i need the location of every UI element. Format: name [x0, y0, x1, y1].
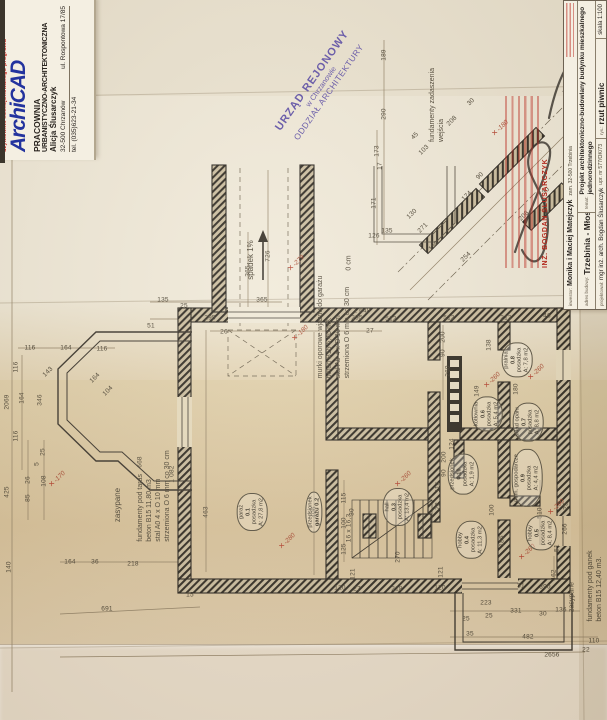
room-label-line: hobby — [528, 521, 535, 546]
room-label-line: 0.3 — [391, 493, 398, 521]
titleblock-designer-row: projektował: mgr inż. arch. Bogdan Ślusa… — [596, 1, 606, 309]
note-line: murki oporowe wjazdu do garażu — [316, 276, 325, 379]
note-line: fundamenty zadaszenia — [428, 68, 437, 142]
archicad-logo: ArchiCAD — [8, 6, 29, 152]
level-mark: ✕-180 — [290, 323, 310, 343]
plan-note: zasypane — [567, 582, 576, 612]
letterhead-line1: PRACOWNIA — [32, 6, 42, 152]
dim-label: 174 — [460, 189, 473, 202]
room-label-line: A: 11,3 m2 — [478, 526, 485, 554]
dim-label: 110 — [589, 638, 600, 645]
dim-label: 295 — [204, 315, 215, 322]
note-line: 0 cm — [344, 255, 353, 270]
titleblock-investor-row: inwestor: Monika i Maciej Matejczyk zam.… — [564, 1, 578, 309]
level-mark-icon: ✕ — [48, 480, 57, 489]
room-label-line: hall — [385, 493, 392, 521]
room-label: hobby0.4posadzkaA: 11,3 m2 — [456, 521, 487, 559]
level-mark-icon: ✕ — [527, 373, 536, 382]
investor-name: Monika i Maciej Matejczyk — [567, 200, 574, 286]
dim-label: 482 — [522, 634, 533, 641]
designer-name: mgr inż. arch. Bogdan Ślusarczyk — [598, 188, 605, 280]
dim-label: 390 — [539, 584, 550, 591]
room-label-line: A: 13,4 m2 — [405, 493, 412, 521]
level-mark: ✕-170 — [47, 469, 67, 489]
dim-label: 149 — [474, 385, 481, 396]
note-line: beton B15 11,80 m3. — [145, 450, 154, 541]
level-mark-icon: ✕ — [518, 553, 527, 562]
plan-note: 0 cm — [344, 255, 353, 270]
letterhead-line3: Alicja Ślusarczyk — [49, 6, 58, 152]
letterhead-address-row: 32-500 Chrzanów ul. Rospontowa 17/85 — [60, 6, 67, 152]
dim-label: 104 — [101, 384, 114, 397]
room-label-line: kotłownia — [474, 402, 481, 427]
letterhead-line2: URBANISTYCZNO-ARCHITEKTONICZNA — [42, 6, 49, 152]
room-label-line: posadzka — [527, 454, 534, 502]
dim-label: 346 — [37, 394, 44, 405]
dim-label: 124 — [449, 438, 456, 449]
room-label-line: 0.1 — [245, 498, 252, 526]
level-mark-icon: ✕ — [483, 381, 492, 390]
room-label-line: 0.6 — [480, 402, 487, 427]
dim-label: 116 — [13, 431, 20, 442]
dim-label: 125 — [341, 543, 348, 554]
room-label-line: przedsionek — [307, 496, 314, 527]
investor-address: zam. 32-500 Trzebinia — [568, 146, 574, 195]
dim-label: 260 — [445, 365, 452, 376]
dim-label: 116 — [13, 362, 20, 373]
note-line: strzemiona O 6 mm co 30 cm — [163, 450, 172, 541]
dim-label: 136 — [555, 607, 566, 614]
dim-label: 90 — [440, 349, 447, 357]
plan-note: fundamenty pod ganekbeton B15 12,40 m3. — [586, 550, 604, 621]
dim-label: 108 — [41, 475, 48, 486]
title-block: inwestor: Monika i Maciej Matejczyk zam.… — [563, 0, 607, 310]
subject-cell: temat: Projekt architektoniczno-budowlan… — [578, 1, 595, 212]
room-label-line: A: 5,4 m2 — [494, 402, 501, 427]
dim-label: 35 — [466, 631, 474, 638]
drawing-name: rzut piwnic — [597, 83, 606, 125]
dim-label: 30 — [466, 97, 476, 107]
room-label-line: A: 1,9 m2 — [470, 458, 477, 489]
dim-label: 26 — [25, 476, 32, 484]
dim-label: 116 — [97, 346, 108, 353]
dim-label: 365 — [256, 297, 267, 304]
level-mark-icon: ✕ — [287, 264, 296, 273]
note-line: strzemiona O 6 mm co 30 cm — [343, 276, 352, 379]
room-label-line: 0.10 — [456, 458, 463, 489]
dim-label: 85 — [25, 494, 32, 502]
room-label: hall0.3posadzkaA: 13,4 m2 — [383, 488, 414, 526]
note-line: beton B15 5,40 m3. — [325, 276, 334, 379]
dim-label: 200 — [440, 331, 447, 342]
dim-label: 295 — [351, 315, 362, 322]
titleblock-anchor: inwestor: Monika i Maciej Matejczyk zam.… — [563, 310, 607, 354]
dim-label: 30 — [349, 508, 356, 516]
level-mark-icon: ✕ — [491, 129, 500, 138]
level-mark-icon: ✕ — [291, 334, 300, 343]
dim-label: 189 — [381, 49, 388, 60]
room-label-line: posadzka — [252, 498, 259, 526]
note-line: stal A0 4 x O 10 mm — [154, 450, 163, 541]
room-label: garaż0.1posadzkaA: 27,8 m2 — [237, 493, 268, 531]
note-line: zasypane — [567, 582, 576, 612]
dim-label: 126 — [368, 233, 379, 240]
approval-stamp: INŻ. BOGDAN ŚLUSARCZYK — [505, 88, 560, 268]
letterhead-city: 32-500 Chrzanów — [60, 101, 67, 152]
dim-label: 51 — [147, 323, 155, 330]
note-line: beton B15 12,40 m3. — [595, 550, 604, 621]
drawing-name-cell: rys.: rzut piwnic — [596, 38, 606, 138]
room-label-line: posadzka — [528, 407, 535, 436]
dim-label: 173 — [374, 145, 381, 156]
dim-label: 290 — [381, 108, 388, 119]
dim-label: 2069 — [4, 394, 11, 409]
note-line: spadek 1% — [246, 240, 256, 280]
room-label: kotłownia0.6posadzkaA: 5,4 m2 — [472, 397, 503, 432]
dim-label: 208 — [445, 114, 458, 127]
dim-label: 164 — [64, 559, 75, 566]
dim-label: 26 — [220, 329, 228, 336]
project-subject: Projekt architektoniczno-budowlany budyn… — [579, 1, 594, 194]
room-label-line: A: 8,8 m2 — [535, 407, 542, 436]
note-line: zasypane — [113, 488, 123, 522]
room-label-line: posadzka — [463, 458, 470, 489]
dim-label: 25 — [462, 616, 470, 623]
dim-label: 425 — [4, 486, 11, 497]
designer-label: projektował: — [599, 282, 604, 306]
dim-label: 25 — [40, 448, 47, 456]
dim-label: 5 — [34, 462, 41, 466]
room-label-line: garażu 0.2 — [314, 496, 321, 527]
dim-label: 116 — [25, 345, 36, 352]
level-mark: ✕-279 — [286, 253, 306, 273]
dim-label: 150 — [427, 239, 440, 252]
room-label-line: A: 4,4 m2 — [534, 454, 541, 502]
scale-cell: skala 1:100 — [596, 1, 606, 38]
dim-label: 121 — [438, 566, 445, 577]
dim-label: 200 — [441, 451, 448, 462]
plan-note: zasypane — [113, 488, 123, 522]
dim-label: 218 — [127, 561, 138, 568]
dim-label: 164 — [19, 392, 26, 403]
dim-label: 462 — [551, 569, 558, 580]
room-label-line: posadzka — [471, 526, 478, 554]
dim-label: 164 — [60, 345, 71, 352]
room-label: przedsionek0.10posadzkaA: 1,9 m2 — [448, 453, 479, 494]
dim-label: 138 — [486, 339, 493, 350]
stamp-architect-name: INŻ. BOGDAN ŚLUSARCZYK — [542, 88, 549, 268]
dim-label: 15 — [186, 592, 194, 599]
dim-label: 164 — [88, 371, 101, 384]
dim-label: 36 — [91, 559, 99, 566]
room-label: pralnia0.8posadzkaA: 7,8 m2 — [502, 343, 533, 378]
dim-label: 45 — [410, 131, 420, 141]
drawing-scale: skala 1:100 — [598, 4, 604, 35]
room-label-line: posadzka — [517, 348, 524, 373]
level-mark-icon: ✕ — [278, 542, 287, 551]
drawing-label: rys.: — [599, 127, 604, 136]
dim-label: 135 — [157, 297, 168, 304]
room-label: pom. gospodarcze0.9posadzkaA: 4,4 m2 — [512, 449, 543, 507]
letterhead-anchor: użytkownik licencjonowanego programu Arc… — [0, 160, 160, 256]
note-line: fundamenty pod taras — [136, 450, 145, 541]
room-label-line: posadzka — [487, 402, 494, 427]
room-label-line: posadzka — [541, 521, 548, 546]
dim-label: 223 — [480, 600, 491, 607]
dim-label: 25 — [485, 613, 493, 620]
plan-note: murki oporowe wjazdu do garażubeton B15 … — [316, 276, 352, 379]
dim-label: 51 — [554, 544, 561, 552]
dim-label: 218 — [391, 586, 402, 593]
room-label-line: hobby — [458, 526, 465, 554]
scan-edge-shadow — [0, 0, 5, 163]
level-mark: ✕-260 — [482, 370, 502, 390]
note-line: wejścia — [437, 68, 446, 142]
dim-label: 27 — [353, 586, 361, 593]
dim-label: 270 — [395, 551, 402, 562]
dim-label: 266 — [562, 523, 569, 534]
dim-label: 121 — [350, 568, 357, 579]
dim-label: 17 — [377, 162, 384, 170]
dim-label: 143 — [41, 365, 54, 378]
dim-label: 271 — [416, 221, 429, 234]
illegible-stamp-text — [505, 96, 539, 268]
room-label-line: A: 27,8 m2 — [259, 498, 266, 526]
room-label-line: 0.4 — [464, 526, 471, 554]
dim-label: 27 — [366, 328, 374, 335]
room-label-line: przedsionek — [450, 458, 457, 489]
plan-note: fundamenty zadaszeniawejścia — [428, 68, 446, 142]
titleblock-project-row: adres budowy: Trzebinia - Młoszowa temat… — [578, 1, 596, 309]
room-label-line: posadzka — [398, 493, 405, 521]
site-address: Trzebinia - Młoszowa — [582, 212, 592, 275]
dim-label: 90 — [475, 171, 485, 181]
room-label-line: A: 7,8 m2 — [524, 348, 531, 373]
plan-note: fundamenty pod tarasbeton B15 11,80 m3.s… — [136, 450, 172, 541]
room-label: hobby0.5posadzkaA: 8,4 m2 — [526, 516, 557, 551]
dim-label: 25 — [180, 303, 188, 310]
room-label-line: 0.9 — [520, 454, 527, 502]
room-label-line: 0.5 — [534, 521, 541, 546]
dim-label: 135 — [381, 228, 392, 235]
investor-label: inwestor: — [568, 288, 573, 306]
dim-label: 186 — [499, 535, 506, 546]
dim-label: 171 — [371, 197, 378, 208]
dim-label: 115 — [341, 493, 348, 504]
level-mark: ✕-260 — [393, 469, 413, 489]
dim-label: 103 — [417, 143, 430, 156]
room-label: przedsionekgarażu 0.2 — [305, 491, 322, 532]
room-label-line: pralnia — [504, 348, 511, 373]
room-label: skład opału0.7posadzkaA: 8,8 m2 — [513, 402, 544, 441]
dim-label: 30 — [539, 611, 547, 618]
plan-note: spadek 1% — [246, 240, 256, 280]
dim-label: 72 — [435, 502, 442, 510]
note-line: fundamenty pod ganek — [586, 550, 595, 621]
dim-label: 120 — [434, 585, 445, 592]
dim-label: 120 — [334, 585, 345, 592]
dim-label: 2656 — [544, 652, 559, 659]
dim-label: 180 — [513, 383, 520, 394]
dim-label: 22 — [582, 647, 590, 654]
dim-label: 512 — [385, 316, 396, 323]
designer-cell: projektował: mgr inż. arch. Bogdan Ślusa… — [596, 138, 606, 309]
mini-red-stamp — [566, 3, 576, 57]
room-label-line: 0.7 — [521, 407, 528, 436]
dim-label: 513 — [443, 315, 454, 322]
dim-label: 331 — [510, 608, 521, 615]
letterhead-street: ul. Rospontowa 17/85 — [60, 6, 67, 69]
site-address-label: adres budowy: — [584, 277, 589, 306]
room-label-line: 0.8 — [510, 348, 517, 373]
room-label-line: pom. gospodarcze — [514, 454, 521, 502]
dim-label: 140 — [6, 561, 13, 572]
letterhead-phone: tel. (035)623-21-34 — [69, 6, 78, 152]
room-label-line: garaż — [239, 498, 246, 526]
dim-label: 130 — [405, 207, 418, 220]
letterhead: użytkownik licencjonowanego programu Arc… — [0, 0, 96, 160]
dim-label: 463 — [203, 506, 210, 517]
dim-label: 100 — [489, 504, 496, 515]
dim-label: 726 — [265, 250, 272, 261]
level-mark: ✕-280 — [277, 531, 297, 551]
dim-label: 254 — [459, 250, 472, 263]
dim-label: 100 — [341, 517, 348, 528]
dim-label: 114 — [435, 482, 442, 493]
room-label-line: skład opału — [515, 407, 522, 436]
note-line: stal A0 4 x O 10 mm — [334, 276, 343, 379]
room-label-line: A: 8,4 m2 — [548, 521, 555, 546]
dim-label: 31 — [517, 583, 525, 590]
subject-label: temat: — [584, 196, 589, 209]
dim-label: 1 648 — [353, 308, 370, 315]
dim-label: 691 — [101, 606, 112, 613]
site-address-cell: adres budowy: Trzebinia - Młoszowa — [578, 212, 595, 309]
level-mark-icon: ✕ — [547, 508, 556, 517]
designer-license: upr. nr 577/OK/73 — [598, 144, 604, 185]
dim-label: 90 — [441, 469, 448, 477]
scanned-basement-plan-sheet: 135253652952955126271 648512513213467263… — [0, 0, 607, 720]
